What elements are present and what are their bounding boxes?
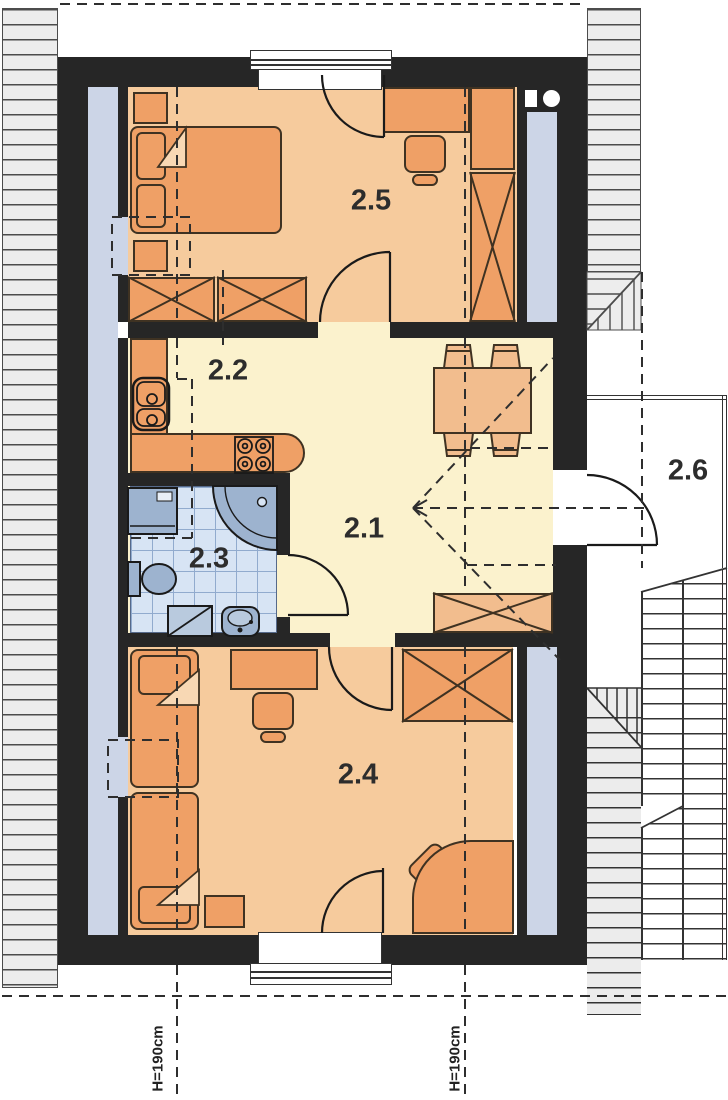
stair-winder — [587, 688, 641, 747]
room-label-2-5: 2.5 — [351, 185, 391, 218]
floor-plan: 2.1 2.2 2.3 2.4 2.5 2.6 H=190cm H=190cm — [0, 0, 728, 1100]
door-room-2-5 — [320, 252, 390, 322]
height-annotation-right: H=190cm — [447, 1019, 464, 1099]
corner-shower — [213, 486, 277, 550]
washbasin — [222, 607, 259, 636]
room-label-2-1: 2.1 — [344, 513, 384, 546]
door-swings — [288, 75, 657, 933]
toilet — [128, 562, 176, 596]
stove — [235, 437, 273, 473]
shower-tray — [168, 606, 212, 636]
dashed-slope-arrows — [413, 358, 645, 660]
door-bathroom — [288, 555, 348, 615]
dashed-recess-2-5 — [112, 217, 190, 275]
washing-machine — [128, 488, 177, 534]
height-annotation-left: H=190cm — [150, 1019, 167, 1099]
dashed-guide-lines — [2, 4, 728, 1100]
kitchen-sink — [133, 378, 169, 430]
dining-chairs — [444, 345, 520, 456]
room-label-2-4: 2.4 — [338, 759, 378, 792]
room-label-2-3: 2.3 — [189, 543, 229, 576]
dashed-recess-2-4 — [108, 740, 178, 797]
stair-break-marks — [641, 568, 727, 828]
door-room-2-4 — [329, 647, 392, 710]
linework-overlay — [0, 0, 728, 1100]
room-label-2-6: 2.6 — [668, 455, 708, 488]
door-balcony-top — [322, 75, 384, 137]
room-label-2-2: 2.2 — [208, 355, 248, 388]
door-room-2-6 — [587, 475, 657, 545]
door-balcony-bottom — [322, 868, 383, 933]
roof-hatch-corner — [587, 272, 641, 330]
corner-desk — [413, 841, 513, 933]
